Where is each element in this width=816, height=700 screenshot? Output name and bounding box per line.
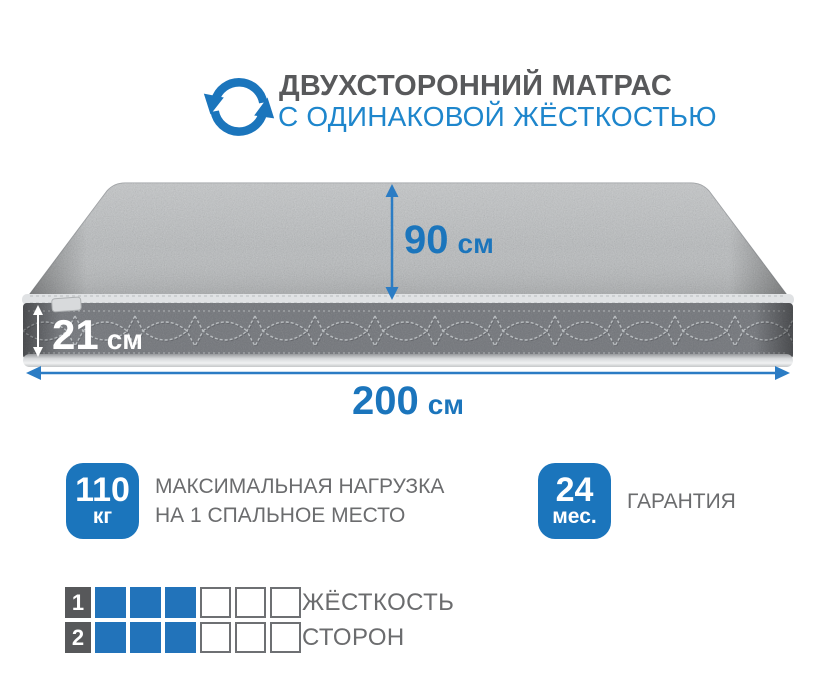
width-dimension-label: 200см <box>352 379 464 423</box>
firmness-cell-empty <box>235 587 266 618</box>
max-load-badge: 110 кг <box>66 463 139 539</box>
firmness-cell-filled <box>130 622 161 653</box>
firmness-cell-empty <box>200 622 231 653</box>
warranty-unit: мес. <box>552 506 596 528</box>
firmness-cell-empty <box>270 622 301 653</box>
firmness-row-side1: 1 <box>65 587 301 618</box>
firmness-scale: 1 2 <box>65 587 301 653</box>
firmness-row-side2: 2 <box>65 622 301 653</box>
mattress-bottom-piping <box>23 354 793 367</box>
title-line1: ДВУХСТОРОННИЙ МАТРАС <box>278 70 673 102</box>
height-unit: см <box>107 324 143 355</box>
rotate-arrows-icon <box>201 68 277 144</box>
rotate-top-arc <box>215 82 263 102</box>
firmness-cell-empty <box>235 622 266 653</box>
height-value: 21 <box>52 311 99 358</box>
mattress-handle <box>52 297 82 312</box>
warranty-label-line1: ГАРАНТИЯ <box>627 487 736 516</box>
width-unit: см <box>428 389 464 420</box>
max-load-feature: 110 кг МАКСИМАЛЬНАЯ НАГРУЗКА НА 1 СПАЛЬН… <box>66 463 444 539</box>
firmness-cell-empty <box>270 587 301 618</box>
width-value: 200 <box>352 379 419 423</box>
warranty-badge: 24 мес. <box>538 463 611 539</box>
warranty-label: ГАРАНТИЯ <box>627 487 736 516</box>
firmness-label: ЖЁСТКОСТЬ СТОРОН <box>302 587 454 653</box>
firmness-cell-filled <box>165 587 196 618</box>
page-title: ДВУХСТОРОННИЙ МАТРАС С ОДИНАКОВОЙ ЖЁСТКО… <box>278 70 673 132</box>
firmness-cell-filled <box>95 587 126 618</box>
firmness-cell-filled <box>95 622 126 653</box>
title-line2: С ОДИНАКОВОЙ ЖЁСТКОСТЬЮ <box>278 102 673 132</box>
firmness-label-line1: ЖЁСТКОСТЬ <box>302 587 454 618</box>
depth-value: 90 <box>404 218 449 262</box>
warranty-value: 24 <box>556 474 594 506</box>
width-dimension-arrow <box>26 366 790 380</box>
firmness-cell-empty <box>200 587 231 618</box>
firmness-side-number: 1 <box>65 587 91 618</box>
max-load-label-line2: НА 1 СПАЛЬНОЕ МЕСТО <box>155 501 444 530</box>
warranty-feature: 24 мес. ГАРАНТИЯ <box>538 463 736 539</box>
firmness-cell-filled <box>165 622 196 653</box>
max-load-unit: кг <box>93 506 112 528</box>
depth-unit: см <box>458 228 494 259</box>
firmness-side-number: 2 <box>65 622 91 653</box>
mattress-illustration: 90см 21см 200см <box>0 155 816 425</box>
max-load-label-line1: МАКСИМАЛЬНАЯ НАГРУЗКА <box>155 472 444 501</box>
max-load-label: МАКСИМАЛЬНАЯ НАГРУЗКА НА 1 СПАЛЬНОЕ МЕСТ… <box>155 472 444 530</box>
firmness-cell-filled <box>130 587 161 618</box>
firmness-label-line2: СТОРОН <box>302 622 454 653</box>
max-load-value: 110 <box>75 474 130 506</box>
